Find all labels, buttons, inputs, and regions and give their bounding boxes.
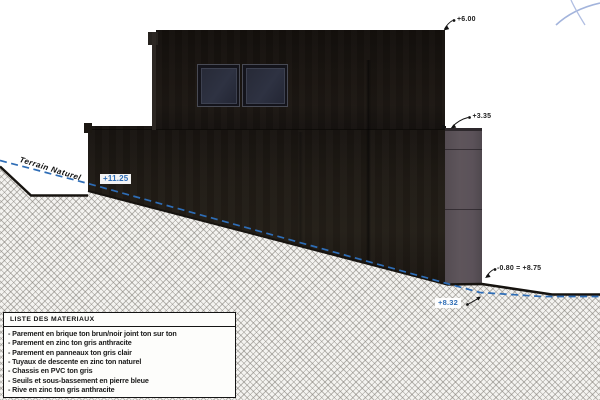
materials-list: - Parement en brique ton brun/noir joint… bbox=[4, 327, 235, 398]
material-item: - Seuils et sous-bassement en pierre ble… bbox=[8, 376, 231, 385]
elevation-label-mid: +3.35 bbox=[473, 113, 492, 121]
leader-ground bbox=[466, 297, 481, 306]
material-item: - Parement en zinc ton gris anthracite bbox=[8, 338, 231, 347]
materials-list-box: LISTE DES MATERIAUX - Parement en brique… bbox=[3, 312, 236, 398]
natural-terrain-dashed-line bbox=[0, 161, 600, 297]
material-item: - Chassis en PVC ton gris bbox=[8, 366, 231, 375]
leader-roof bbox=[444, 19, 456, 30]
elevation-label-base: -0.80 = +8.75 bbox=[497, 265, 541, 273]
elevation-label-roof: +6.00 bbox=[457, 16, 476, 24]
elevation-label-platform: +11.25 bbox=[100, 174, 131, 184]
pen-mark bbox=[556, 0, 600, 25]
elevation-label-ground: +8.32 bbox=[435, 298, 461, 308]
materials-list-title: LISTE DES MATERIAUX bbox=[4, 313, 235, 327]
terrain-line-facade-diagonal bbox=[88, 191, 447, 285]
leader-mid bbox=[451, 116, 471, 128]
elevation-drawing: +6.00 +3.35 +11.25 -0.80 = +8.75 +8.32 T… bbox=[0, 0, 600, 400]
elevation-base-absolute: +8.75 bbox=[523, 265, 542, 272]
material-item: - Rive en zinc ton gris anthracite bbox=[8, 385, 231, 394]
material-item: - Parement en panneaux ton gris clair bbox=[8, 348, 231, 357]
leader-base bbox=[485, 268, 496, 278]
elevation-base-relative: -0.80 = bbox=[497, 265, 523, 272]
material-item: - Parement en brique ton brun/noir joint… bbox=[8, 329, 231, 338]
material-item: - Tuyaux de descente en zinc ton naturel bbox=[8, 357, 231, 366]
